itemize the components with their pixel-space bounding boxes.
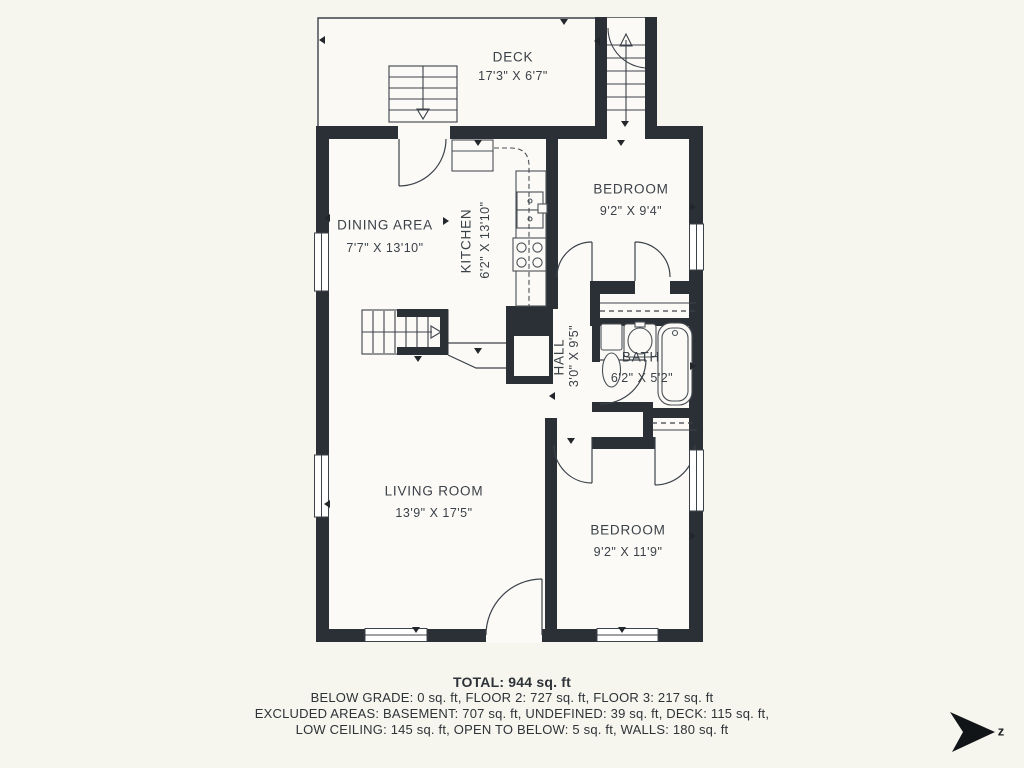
bedroom2-bottom-window — [597, 629, 658, 642]
living-dims: 13'9" X 17'5" — [395, 506, 472, 520]
hall-label: HALL — [552, 339, 567, 376]
hall-dims: 3'0" X 9'5" — [567, 325, 581, 387]
summary-line-2: EXCLUDED AREAS: BASEMENT: 707 sq. ft, UN… — [0, 706, 1024, 721]
living-bottom-window — [365, 629, 427, 642]
bedroom2-dims: 9'2" X 11'9" — [594, 545, 663, 559]
chimney — [506, 306, 553, 384]
kitchen-sink — [517, 192, 547, 228]
bedroom1-dims: 9'2" X 9'4" — [600, 204, 662, 218]
living-label: LIVING ROOM — [385, 484, 484, 499]
summary-line-3: LOW CEILING: 145 sq. ft, OPEN TO BELOW: … — [0, 722, 1024, 737]
bedroom2-window — [690, 450, 704, 511]
bedroom2-label: BEDROOM — [590, 523, 665, 538]
bedroom1-label: BEDROOM — [593, 182, 668, 197]
dining-label: DINING AREA — [337, 218, 433, 233]
entry-door-opening — [486, 628, 542, 643]
deck-dims: 17'3" X 6'7" — [478, 69, 548, 83]
summary-line-1: BELOW GRADE: 0 sq. ft, FLOOR 2: 727 sq. … — [0, 690, 1024, 705]
bedroom1-window — [690, 224, 704, 270]
summary-total: TOTAL: 944 sq. ft — [0, 674, 1024, 690]
floor-plan-drawing — [0, 0, 1024, 768]
floor-plan-page: DECK 17'3" X 6'7" BEDROOM 9'2" X 9'4" DI… — [0, 0, 1024, 768]
kitchen-label: KITCHEN — [459, 209, 474, 274]
deck-label: DECK — [493, 50, 534, 65]
stairwell-landing-opening — [607, 125, 645, 140]
kitchen-dims: 6'2" X 13'10" — [478, 201, 492, 278]
dining-window — [315, 233, 329, 291]
living-window — [315, 455, 329, 517]
stairwell-stairs — [595, 17, 657, 128]
bath-dims: 6'2" X 5'2" — [611, 371, 673, 385]
bathtub — [658, 323, 692, 405]
living-bedroom-wall — [545, 418, 557, 630]
deck-stairs — [389, 66, 457, 122]
fridge — [452, 140, 493, 171]
bath-left-wall — [592, 318, 600, 362]
stairwell-wall-left — [595, 17, 607, 128]
stairwell-wall-right — [645, 17, 657, 128]
dining-dims: 7'7" X 13'10" — [346, 241, 423, 255]
kitchen-door-opening — [398, 125, 450, 140]
bath-label: BATH — [622, 350, 660, 365]
compass-label: z — [998, 724, 1005, 739]
